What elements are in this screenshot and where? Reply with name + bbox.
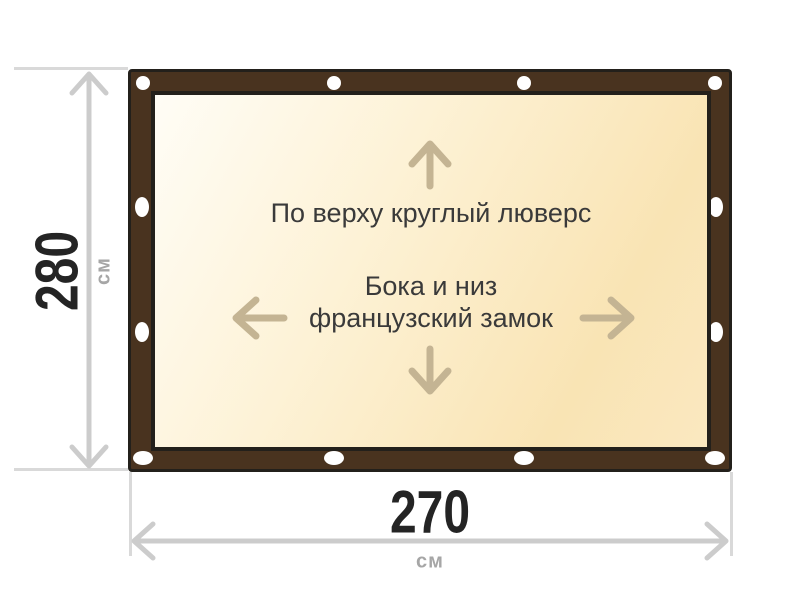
grommet-icon	[133, 451, 153, 465]
height-dimension-unit: см	[93, 257, 116, 285]
grommet-icon	[135, 322, 149, 342]
grommet-icon	[709, 322, 723, 342]
height-dimension-value: 280	[23, 221, 92, 321]
grommet-icon	[709, 197, 723, 217]
top-note: По верху круглый люверс	[155, 197, 707, 229]
tarp-panel: По верху круглый люверс Бока и низ франц…	[151, 91, 711, 451]
right-arrow-icon	[575, 296, 639, 340]
grommet-icon	[324, 451, 344, 465]
grommet-icon	[135, 197, 149, 217]
up-arrow-icon	[406, 136, 454, 192]
down-arrow-icon	[406, 343, 454, 399]
tarp-size-diagram: 280 см По верху круглый люверс	[0, 0, 800, 600]
grommet-icon	[327, 76, 341, 90]
width-dimension-unit: см	[416, 551, 444, 574]
grommet-icon	[517, 76, 531, 90]
tarp-frame: По верху круглый люверс Бока и низ франц…	[128, 69, 732, 472]
grommet-icon	[705, 451, 725, 465]
grommet-icon	[514, 451, 534, 465]
grommet-icon	[136, 76, 150, 90]
width-dimension-value: 270	[380, 478, 480, 547]
grommet-icon	[708, 76, 722, 90]
